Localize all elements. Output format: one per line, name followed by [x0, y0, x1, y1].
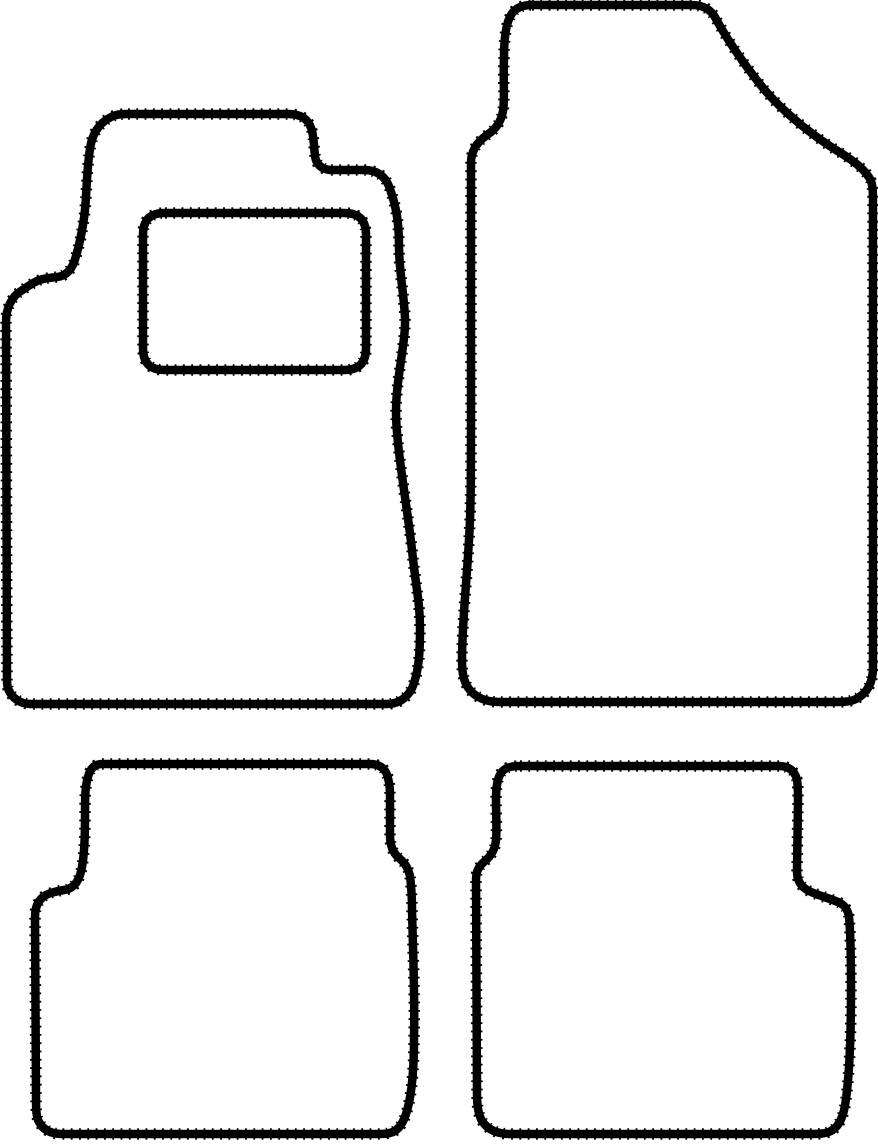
front-left-mat: [6, 114, 420, 704]
front-left-mat-outline: [6, 114, 420, 704]
front-right-mat-outline: [462, 5, 873, 702]
rear-right-mat: [476, 766, 851, 1134]
mat-set-svg: [0, 0, 878, 1144]
rear-left-mat: [35, 764, 414, 1134]
front-right-mat: [462, 5, 873, 702]
front-left-mat-edge-serration: [6, 114, 420, 704]
front-left-mat-edge-serration: [143, 213, 366, 370]
front-right-mat-edge-serration: [462, 5, 873, 702]
rear-right-mat-outline: [476, 766, 851, 1134]
front-left-mat-outline: [143, 213, 366, 370]
rear-left-mat-outline: [35, 764, 414, 1134]
rear-left-mat-edge-serration: [35, 764, 414, 1134]
mat-set-drawing: [0, 0, 878, 1144]
